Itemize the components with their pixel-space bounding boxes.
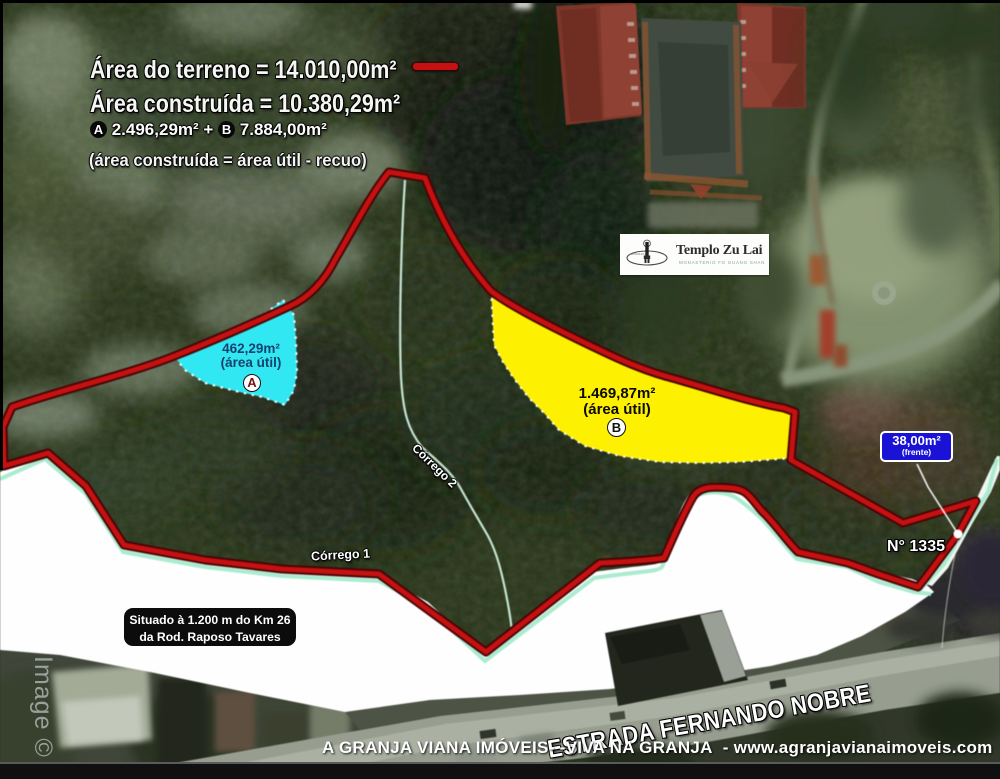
svg-text:BUDDHIST: BUDDHIST [631, 252, 647, 256]
